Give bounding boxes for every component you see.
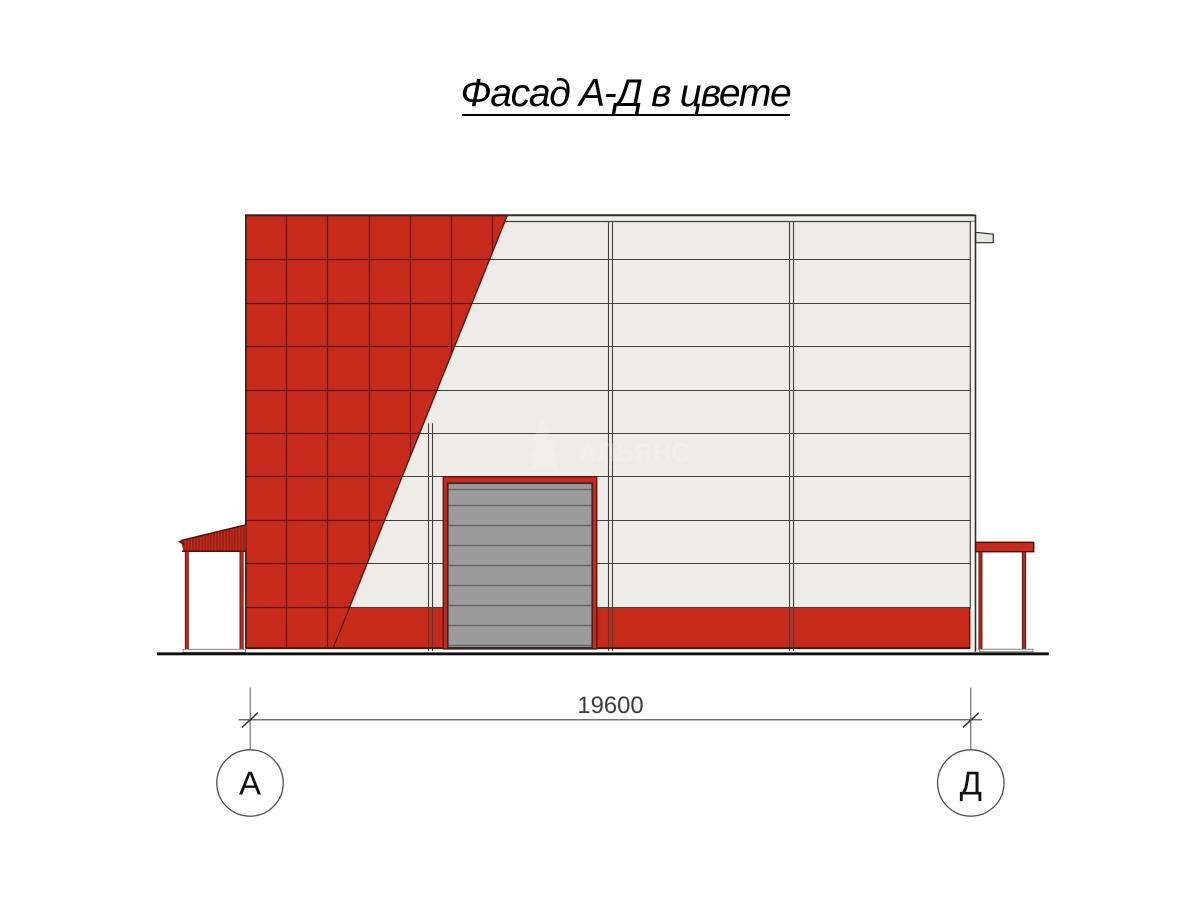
svg-text:Д: Д (960, 765, 982, 802)
svg-text:19600: 19600 (577, 692, 643, 719)
svg-text:АЛЬЯНС: АЛЬЯНС (578, 437, 690, 467)
svg-text:А: А (239, 765, 261, 802)
svg-text:ПРОЕКТНО-СТРОИТЕЛЬНАЯ КОМПАНИЯ: ПРОЕКТНО-СТРОИТЕЛЬНАЯ КОМПАНИЯ (566, 466, 698, 473)
